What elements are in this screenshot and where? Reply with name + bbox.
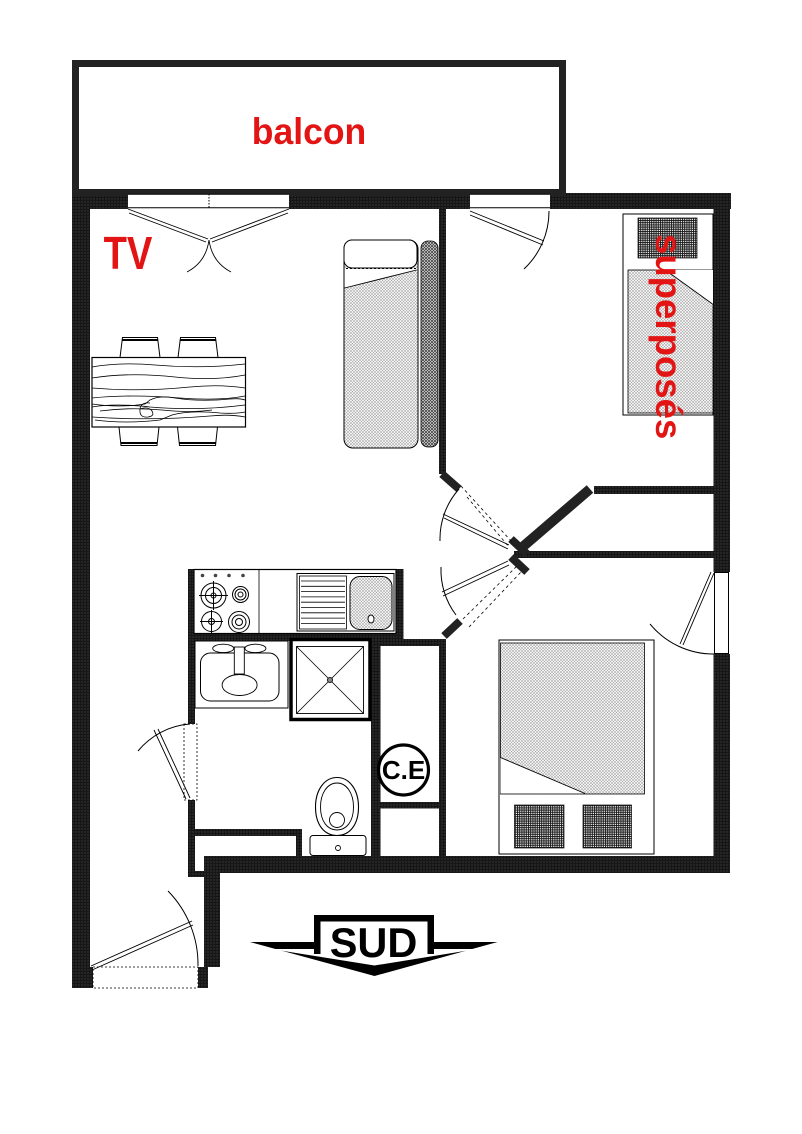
- svg-text:balcon: balcon: [252, 111, 366, 153]
- svg-text:TV: TV: [104, 228, 153, 279]
- svg-text:SUD: SUD: [330, 919, 418, 966]
- svg-text:superposés: superposés: [648, 234, 689, 439]
- svg-text:C.E: C.E: [382, 755, 425, 785]
